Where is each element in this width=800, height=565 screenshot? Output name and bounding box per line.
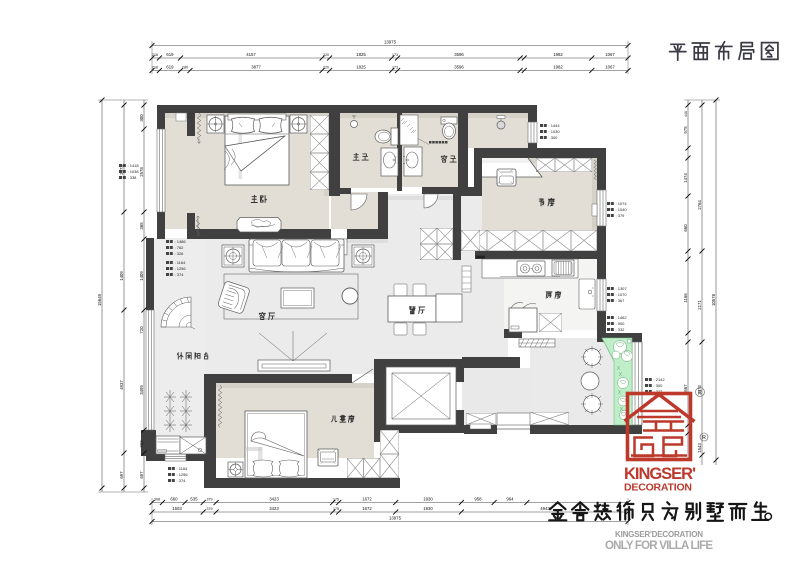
svg-text:1982: 1982 xyxy=(553,52,563,57)
svg-text:308: 308 xyxy=(154,498,160,502)
svg-text:722: 722 xyxy=(139,440,144,448)
svg-text:: 1164: : 1164 xyxy=(177,466,189,471)
svg-text:: 338: : 338 xyxy=(128,175,138,180)
svg-text:216: 216 xyxy=(152,53,158,57)
svg-text:660: 660 xyxy=(170,497,178,502)
svg-text:379: 379 xyxy=(207,507,213,511)
svg-text:220: 220 xyxy=(323,53,329,57)
svg-text:697: 697 xyxy=(119,471,124,479)
svg-text:DECORATION: DECORATION xyxy=(624,482,692,494)
svg-text:: 2142: : 2142 xyxy=(654,377,666,382)
svg-text:667: 667 xyxy=(683,384,688,392)
svg-text:1825: 1825 xyxy=(356,65,366,70)
svg-text:175: 175 xyxy=(333,498,339,502)
svg-text:: 1256: : 1256 xyxy=(175,266,187,271)
svg-text:: 1418: : 1418 xyxy=(128,163,140,168)
svg-text:1409: 1409 xyxy=(139,271,144,281)
svg-text:: 374: : 374 xyxy=(175,272,185,277)
svg-text:: 300: : 300 xyxy=(549,135,559,140)
svg-text:: 374: : 374 xyxy=(177,478,187,483)
svg-text:1503: 1503 xyxy=(172,506,182,511)
svg-text:: 367: : 367 xyxy=(616,298,626,303)
svg-text:1474: 1474 xyxy=(683,173,688,183)
svg-text:2578: 2578 xyxy=(139,167,144,177)
svg-text:: 379: : 379 xyxy=(616,213,626,218)
svg-text:220: 220 xyxy=(323,66,329,70)
svg-text:4157: 4157 xyxy=(246,52,256,57)
svg-text:3596: 3596 xyxy=(454,65,464,70)
svg-text:R: R xyxy=(698,389,703,396)
svg-text:: 1040: : 1040 xyxy=(616,207,628,212)
svg-text:175: 175 xyxy=(333,507,339,511)
svg-text:: 300: : 300 xyxy=(654,383,664,388)
svg-text:4943: 4943 xyxy=(540,506,550,511)
svg-text:535: 535 xyxy=(190,497,198,502)
svg-text:KINGSER'DECORATION: KINGSER'DECORATION xyxy=(615,530,703,539)
svg-text:173: 173 xyxy=(392,66,398,70)
svg-text:: 1462: : 1462 xyxy=(616,315,628,320)
svg-text:964: 964 xyxy=(506,497,514,502)
svg-text:3877: 3877 xyxy=(251,65,261,70)
svg-text:1672: 1672 xyxy=(362,506,372,511)
svg-text:3596: 3596 xyxy=(454,52,464,57)
svg-text:3423: 3423 xyxy=(269,506,279,511)
svg-text:: 1030: : 1030 xyxy=(549,129,561,134)
svg-text:: 762: : 762 xyxy=(175,245,185,250)
svg-text:: 1444: : 1444 xyxy=(549,123,561,128)
svg-text:4937: 4937 xyxy=(119,380,124,390)
svg-text:: 1486: : 1486 xyxy=(175,239,187,244)
svg-text:3495: 3495 xyxy=(139,385,144,395)
svg-text:: 1038: : 1038 xyxy=(128,169,140,174)
svg-text:1409: 1409 xyxy=(119,271,124,281)
svg-text:: 326: : 326 xyxy=(175,251,185,256)
svg-text:720: 720 xyxy=(139,326,144,334)
svg-text:: 900: : 900 xyxy=(616,321,626,326)
svg-text:958: 958 xyxy=(474,497,482,502)
svg-text:697: 697 xyxy=(139,471,144,479)
svg-text:ONLY FOR VILLA LIFE: ONLY FOR VILLA LIFE xyxy=(605,540,713,552)
svg-text:173: 173 xyxy=(392,53,398,57)
svg-text:1930: 1930 xyxy=(423,506,433,511)
svg-text:: 332: : 332 xyxy=(616,327,626,332)
svg-text:1672: 1672 xyxy=(362,497,372,502)
svg-text:13975: 13975 xyxy=(389,516,402,521)
svg-text:1982: 1982 xyxy=(553,65,563,70)
svg-text:619: 619 xyxy=(166,52,174,57)
svg-text:: 1074: : 1074 xyxy=(616,201,628,206)
svg-text:365: 365 xyxy=(139,222,144,230)
svg-text:1543: 1543 xyxy=(697,443,702,453)
svg-text:10578: 10578 xyxy=(711,293,716,306)
svg-text:1930: 1930 xyxy=(423,497,433,502)
svg-text:300: 300 xyxy=(139,114,144,122)
svg-text:1166: 1166 xyxy=(683,293,688,303)
svg-text:446: 446 xyxy=(684,111,688,117)
svg-text:280: 280 xyxy=(182,66,188,70)
svg-text:619: 619 xyxy=(166,65,174,70)
svg-text:: 1070: : 1070 xyxy=(616,292,628,297)
svg-text:3423: 3423 xyxy=(269,497,279,502)
svg-text:975: 975 xyxy=(683,126,688,134)
svg-text:: 1256: : 1256 xyxy=(177,472,189,477)
svg-text:2171: 2171 xyxy=(697,300,702,310)
svg-text:15649: 15649 xyxy=(97,293,102,306)
svg-text:: 1307: : 1307 xyxy=(616,286,628,291)
svg-text:1067: 1067 xyxy=(605,52,615,57)
svg-text:R: R xyxy=(702,435,706,441)
svg-text:379: 379 xyxy=(207,498,213,502)
svg-text:216: 216 xyxy=(152,66,158,70)
svg-text:1825: 1825 xyxy=(356,52,366,57)
svg-text:1067: 1067 xyxy=(605,65,615,70)
svg-text:2764: 2764 xyxy=(697,200,702,210)
svg-text:13975: 13975 xyxy=(384,40,397,45)
svg-text:: 1164: : 1164 xyxy=(175,260,187,265)
svg-text:660: 660 xyxy=(683,224,688,232)
svg-text:KINGSER': KINGSER' xyxy=(624,465,696,483)
